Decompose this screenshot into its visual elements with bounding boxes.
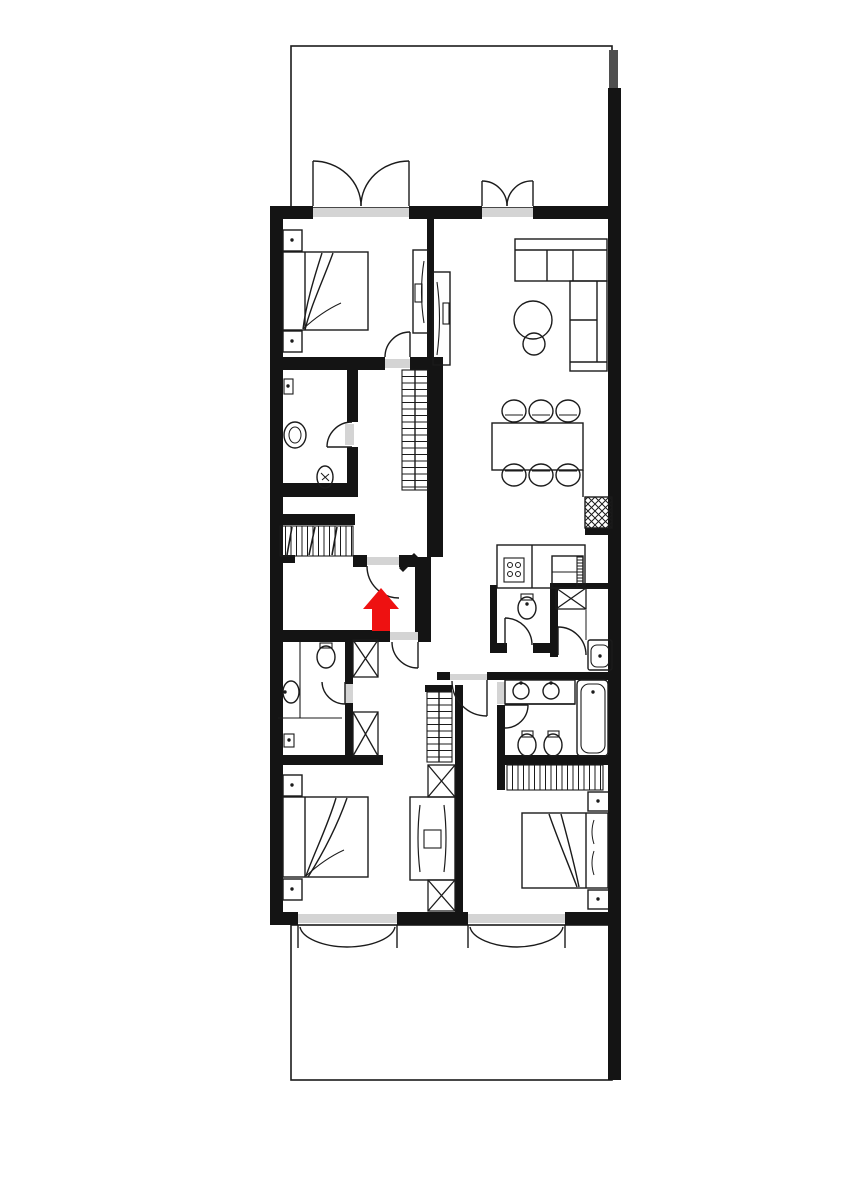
wc-guest (505, 594, 536, 645)
entrance-marker-arrow (363, 588, 399, 631)
bathroom-top (284, 379, 352, 488)
dining-area (492, 400, 583, 486)
french-door-bottom-right (468, 925, 565, 948)
terrace-bottom (291, 925, 612, 1080)
wardrobe-hangers-bottom-right (507, 765, 603, 790)
entry-coat-closet (280, 526, 353, 556)
floor-plan-svg (0, 0, 852, 1200)
closet-shelves-upper (402, 370, 428, 490)
bedroom-bottom-right (522, 792, 609, 909)
plan-root (270, 46, 621, 1080)
floor-plan (0, 0, 852, 1200)
bathroom-lower-left (278, 642, 345, 747)
bathroom-main (452, 680, 608, 756)
living-room (433, 239, 607, 371)
laundry (556, 588, 612, 670)
french-door-top-left (313, 161, 409, 206)
door-bedroom-top-left (385, 332, 410, 357)
french-door-bottom-left (298, 925, 397, 948)
bedroom-top-left (283, 230, 428, 352)
terrace-top (291, 46, 612, 208)
bedroom-bottom-left (283, 775, 368, 900)
door-hall-lower (392, 642, 418, 668)
french-door-top-right (482, 181, 533, 206)
